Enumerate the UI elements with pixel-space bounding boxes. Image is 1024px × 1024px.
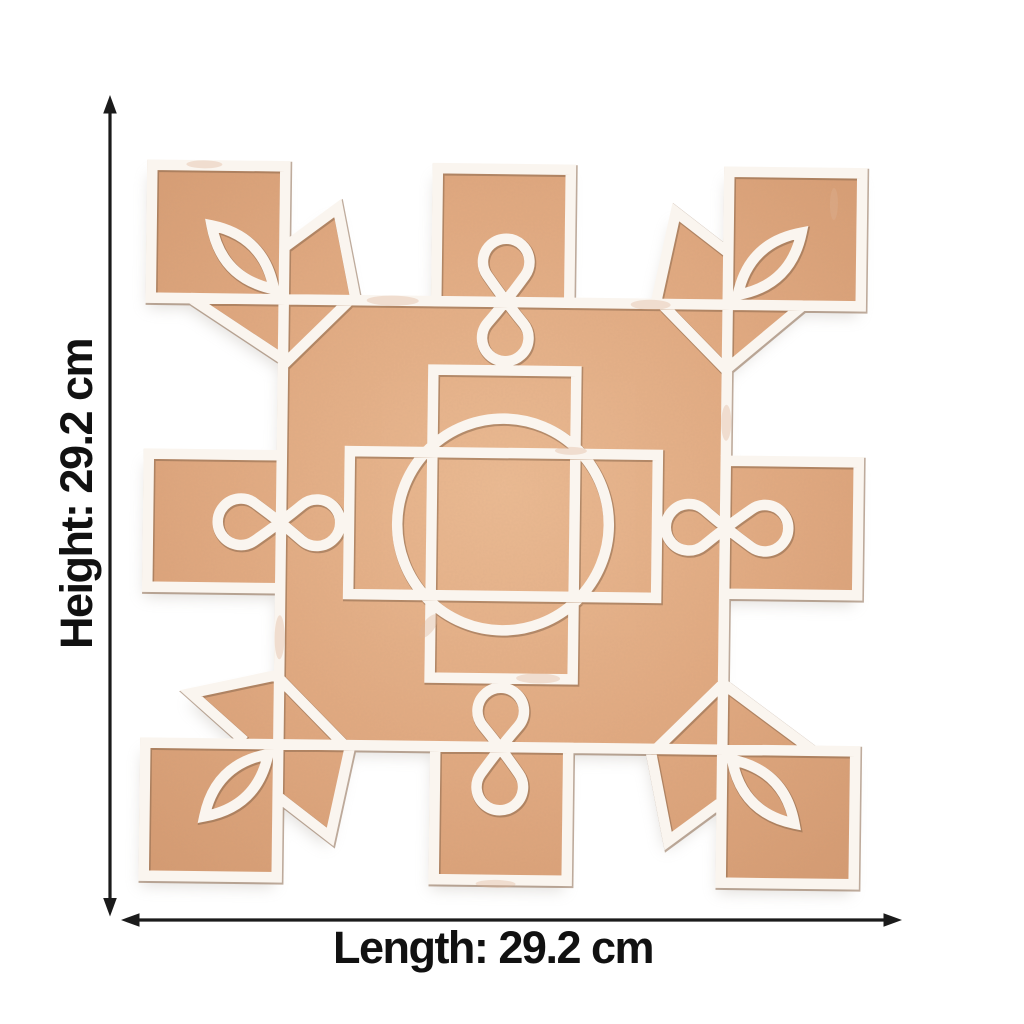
svg-text:Height: 29.2 cm: Height: 29.2 cm — [51, 339, 102, 649]
svg-text:Length: 29.2 cm: Length: 29.2 cm — [333, 922, 653, 973]
